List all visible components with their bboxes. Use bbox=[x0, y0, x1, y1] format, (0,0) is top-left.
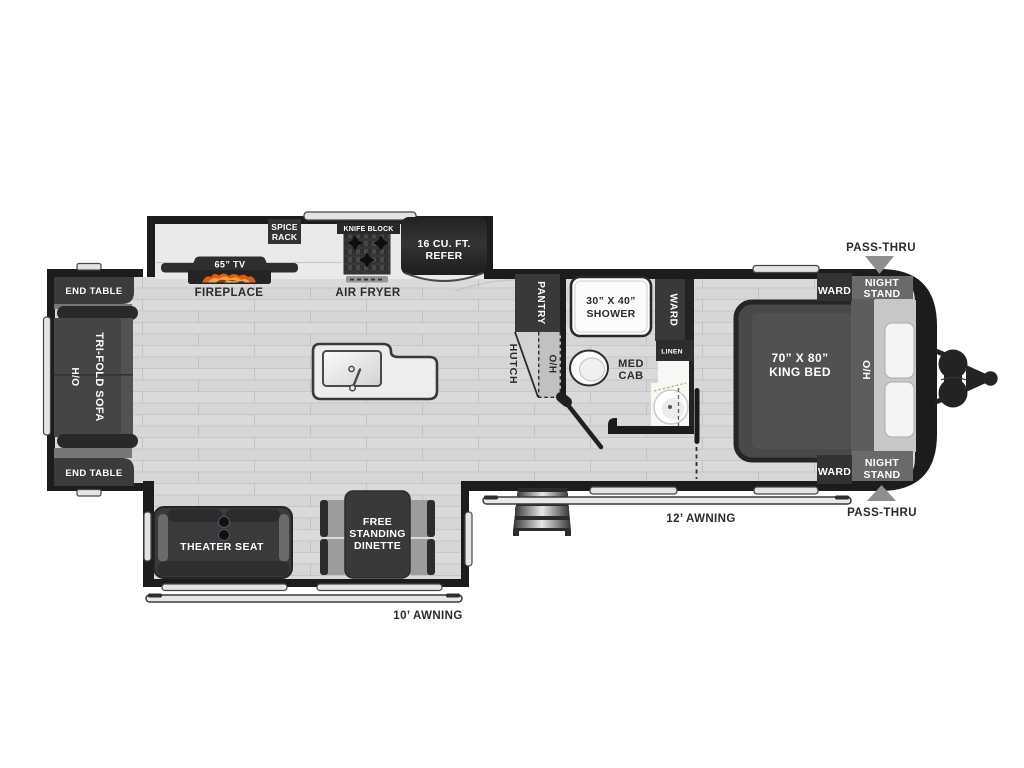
svg-text:PASS-THRU: PASS-THRU bbox=[846, 242, 916, 254]
svg-text:CAB: CAB bbox=[618, 370, 643, 382]
svg-text:KING BED: KING BED bbox=[769, 365, 831, 379]
svg-text:WARD: WARD bbox=[668, 294, 679, 327]
svg-text:FIREPLACE: FIREPLACE bbox=[195, 287, 264, 299]
svg-text:STANDING: STANDING bbox=[349, 528, 405, 540]
svg-text:THEATER SEAT: THEATER SEAT bbox=[180, 541, 264, 553]
svg-text:STAND: STAND bbox=[864, 469, 901, 481]
svg-text:SPICE: SPICE bbox=[271, 222, 298, 232]
svg-text:HUTCH: HUTCH bbox=[507, 344, 519, 385]
svg-text:10’ AWNING: 10’ AWNING bbox=[393, 610, 462, 622]
svg-text:PANTRY: PANTRY bbox=[535, 281, 546, 325]
svg-text:RACK: RACK bbox=[272, 232, 298, 242]
svg-text:O/H: O/H bbox=[547, 355, 558, 374]
svg-text:16 CU. FT.: 16 CU. FT. bbox=[417, 238, 470, 250]
svg-text:LINEN: LINEN bbox=[661, 349, 682, 356]
svg-text:WARD: WARD bbox=[818, 466, 851, 478]
svg-text:WARD: WARD bbox=[818, 285, 851, 297]
svg-text:KNIFE BLOCK: KNIFE BLOCK bbox=[343, 226, 393, 233]
svg-text:12’ AWNING: 12’ AWNING bbox=[666, 513, 735, 525]
svg-text:O/H: O/H bbox=[860, 360, 872, 380]
svg-text:TRI-FOLD SOFA: TRI-FOLD SOFA bbox=[93, 332, 105, 422]
svg-text:STAND: STAND bbox=[864, 288, 901, 300]
svg-text:SHOWER: SHOWER bbox=[586, 308, 635, 320]
svg-text:H/O: H/O bbox=[69, 368, 80, 387]
svg-text:FREE: FREE bbox=[363, 516, 392, 528]
svg-text:END TABLE: END TABLE bbox=[65, 468, 122, 479]
svg-text:DINETTE: DINETTE bbox=[354, 540, 401, 552]
svg-text:MED: MED bbox=[618, 358, 644, 370]
svg-text:REFER: REFER bbox=[425, 250, 462, 262]
svg-text:70” X 80”: 70” X 80” bbox=[772, 351, 829, 365]
svg-text:NIGHT: NIGHT bbox=[865, 457, 899, 469]
svg-text:AIR FRYER: AIR FRYER bbox=[335, 287, 400, 299]
svg-text:PASS-THRU: PASS-THRU bbox=[847, 507, 917, 519]
svg-text:END TABLE: END TABLE bbox=[65, 286, 122, 297]
svg-text:30” X 40”: 30” X 40” bbox=[586, 295, 635, 307]
svg-text:65” TV: 65” TV bbox=[215, 260, 246, 270]
